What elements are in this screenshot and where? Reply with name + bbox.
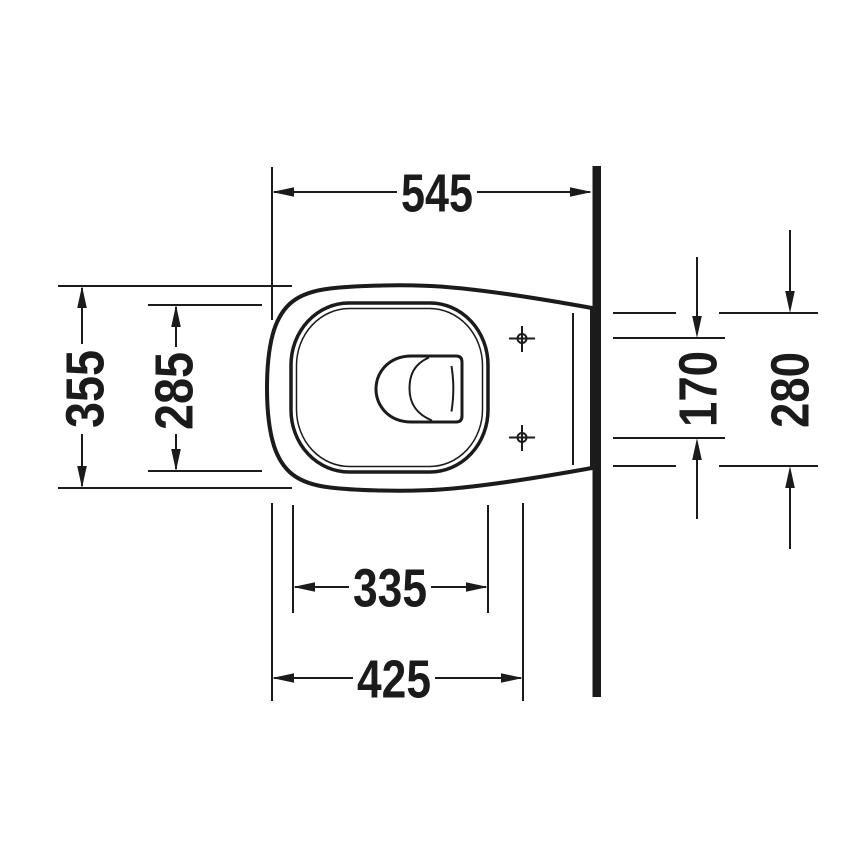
dimension-280-label: 280 xyxy=(761,352,821,428)
arrowhead-left xyxy=(272,187,294,197)
arrowhead-up xyxy=(785,466,795,488)
arrowhead-down xyxy=(785,291,795,313)
dimension-285: 285 xyxy=(145,305,263,471)
arrowhead-down xyxy=(692,316,702,338)
arrowhead-right xyxy=(466,582,488,592)
dimension-285-label: 285 xyxy=(145,352,205,430)
dimension-425-label: 425 xyxy=(357,650,431,710)
arrowhead-down xyxy=(171,449,181,471)
dimension-335-label: 335 xyxy=(353,559,427,619)
dimension-545-label: 545 xyxy=(401,164,473,224)
arrowhead-up xyxy=(171,305,181,327)
dimension-170-label: 170 xyxy=(669,351,729,427)
arrowhead-left xyxy=(293,582,315,592)
dimension-170: 170 xyxy=(613,257,729,519)
arrowhead-left xyxy=(272,673,294,683)
arrowhead-right xyxy=(501,673,523,683)
arrowhead-down xyxy=(77,466,87,488)
drawing-canvas: 545 355 285 170 xyxy=(0,0,868,868)
dimension-335: 335 xyxy=(293,505,488,619)
arrowhead-up xyxy=(77,286,87,308)
toilet-technical-drawing: 545 355 285 170 xyxy=(0,0,868,868)
arrowhead-right xyxy=(570,187,592,197)
dimension-355-label: 355 xyxy=(56,350,116,428)
arrowhead-up xyxy=(692,438,702,460)
